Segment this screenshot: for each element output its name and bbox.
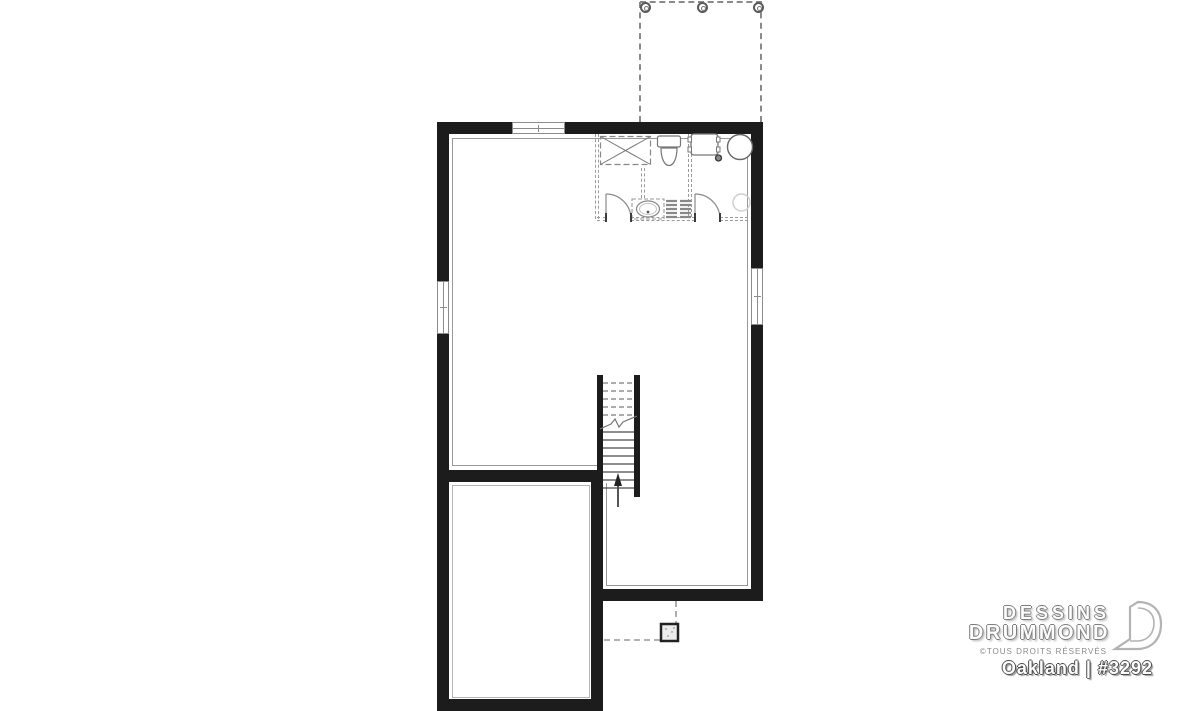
door-jambs (606, 213, 720, 222)
stair-up-arrow-icon (614, 473, 622, 507)
vanity-sink-icon (632, 199, 664, 219)
water-heater-icon (728, 135, 753, 160)
footing-square-icon (661, 624, 678, 641)
brand-line2: DRUMMOND (969, 622, 1110, 645)
staircase (600, 383, 637, 507)
plan-title: Oakland | #3292 (1002, 658, 1153, 679)
drummond-logo-icon (1115, 602, 1161, 649)
post-footing (604, 601, 678, 641)
brand-line1: DESSINS (1003, 603, 1110, 624)
shelving-hatch (666, 201, 691, 217)
door-swing-right (695, 194, 720, 219)
stair-break-line (600, 416, 637, 429)
floor-drain-icon (716, 155, 722, 161)
sump-pit-icon (733, 194, 750, 211)
shower-icon (601, 137, 651, 165)
toilet-icon (658, 136, 681, 166)
brand-rights: ©TOUS DROITS RÉSERVÉS (980, 647, 1107, 656)
floor-plan-canvas: DESSINS DRUMMOND ©TOUS DROITS RÉSERVÉS O… (0, 0, 1200, 711)
door-swing-left (606, 194, 631, 219)
washer-icon (688, 134, 720, 155)
